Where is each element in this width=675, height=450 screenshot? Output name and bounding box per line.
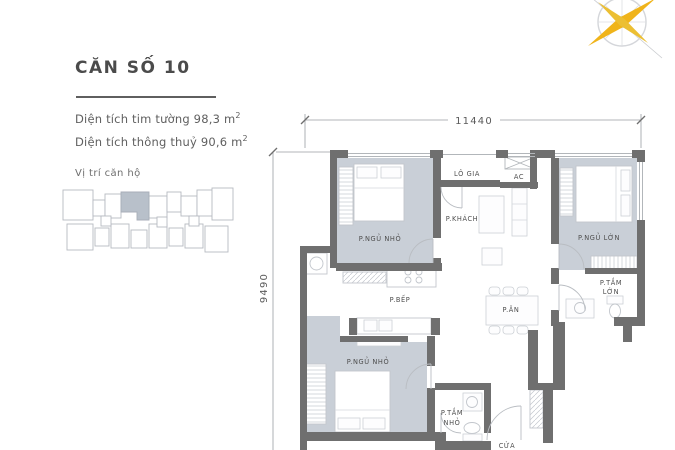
dimension-height-label: 9490 <box>259 273 270 303</box>
toilet <box>464 423 480 434</box>
room-label-bedroom-small-top: P.NGỦ NHỎ <box>359 233 402 243</box>
room-label-loggia: LÔ GIA <box>454 169 480 178</box>
room-label-bath-large-2: LỚN <box>603 287 619 296</box>
room-label-living: P.KHÁCH <box>446 214 478 223</box>
room-label-bath-small-1: P.TẮM <box>441 407 463 417</box>
bath-small-vanity <box>463 393 482 411</box>
floor-plan-drawing: 11440 9490 <box>0 0 675 450</box>
room-label-bedroom-small-bottom: P.NGỦ NHỎ <box>347 356 390 366</box>
furniture <box>306 157 637 441</box>
sofa <box>512 188 527 236</box>
room-label-dining: P.ĂN <box>503 305 520 314</box>
room-label-ac: AC <box>514 173 524 181</box>
bath-large-vanity <box>566 299 594 318</box>
floor-plan-page: CĂN SỐ 10 Diện tích tim tường 98,3 m2 Di… <box>0 0 675 450</box>
side-table <box>482 248 502 265</box>
compass-icon <box>585 0 662 58</box>
tv-cabinet <box>479 196 504 233</box>
room-label-entry: CỬA <box>499 441 516 450</box>
room-label-bedroom-large: P.NGỦ LỚN <box>578 232 620 242</box>
room-label-kitchen: P.BẾP <box>390 294 411 304</box>
washing-machine <box>306 253 327 274</box>
toilet <box>607 296 623 304</box>
dimension-width-label: 11440 <box>455 116 493 127</box>
room-label-bath-large-1: P.TẮM <box>600 277 622 287</box>
room-label-bath-small-2: NHỎ <box>444 417 461 427</box>
